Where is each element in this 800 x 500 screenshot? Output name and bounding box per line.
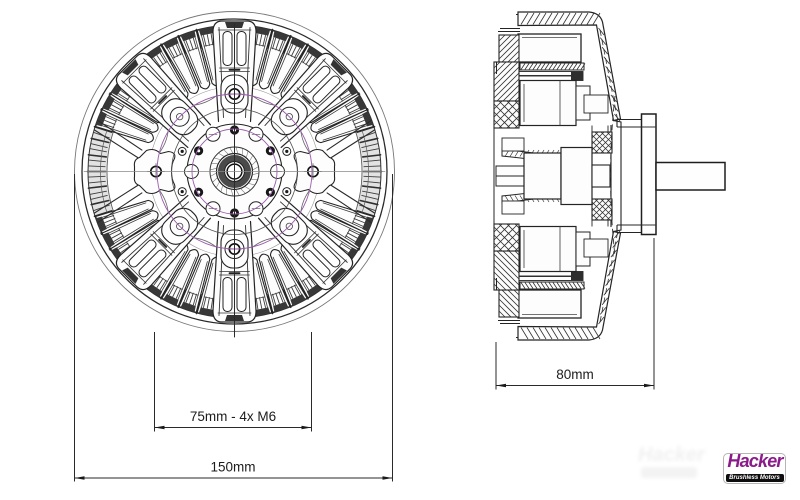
svg-text:75mm - 4x M6: 75mm - 4x M6 xyxy=(190,409,276,424)
svg-text:80mm: 80mm xyxy=(556,367,594,382)
svg-text:150mm: 150mm xyxy=(210,460,255,475)
